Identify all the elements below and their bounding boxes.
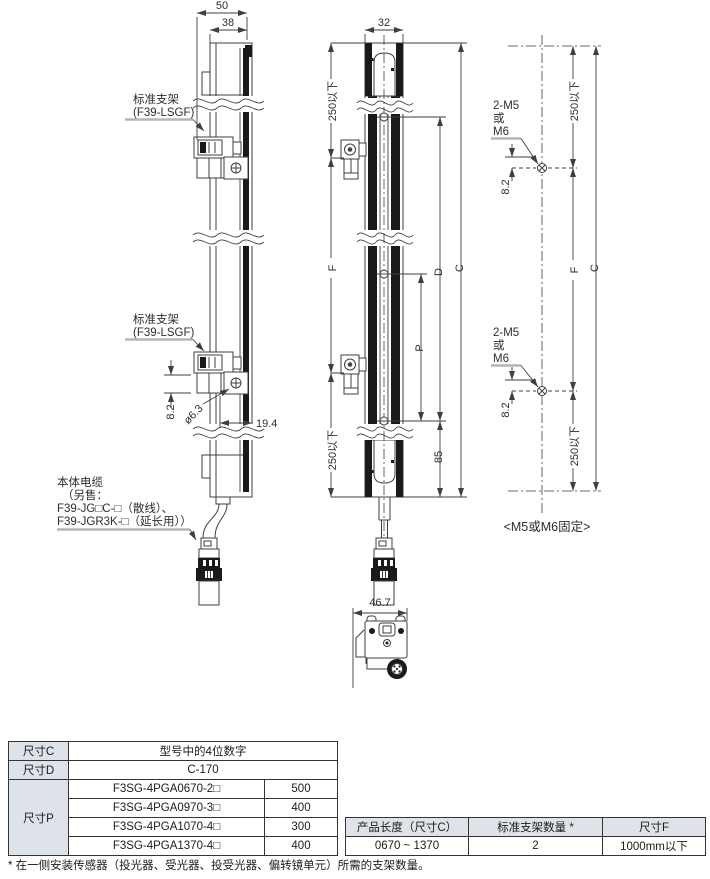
dim-f: F: [569, 266, 581, 273]
bracket-label-bottom: 标准支架 (F39-LSGF): [125, 313, 204, 351]
bracket-label-line2: (F39-LSGF): [133, 107, 195, 119]
dim-f-value: 1000mm以下: [603, 837, 706, 856]
cable-label: 本体电缆 （另售： F39-JG□C-□（散线）、 F39-JGR3K-□（延长…: [57, 475, 196, 540]
dim-8-2-side: 8.2: [165, 404, 177, 419]
header-bracket-count: 标准支架数量 *: [469, 818, 603, 837]
dimension-table: 尺寸C 型号中的4位数字 尺寸D C-170 尺寸P F3SG-4PGA0670…: [8, 741, 338, 856]
break-mark: [357, 98, 413, 114]
cable-label-line1: 本体电缆: [57, 475, 103, 489]
bracket-label-line1: 标准支架: [133, 313, 179, 326]
mounting-bracket-bottom: [341, 355, 366, 394]
dim-p: P: [414, 344, 426, 351]
mount-caption: <M5或M6固定>: [504, 519, 591, 534]
break-mark: [357, 230, 413, 246]
cable-connector: [196, 538, 222, 605]
footnote: * 在一侧安装传感器（投光器、受光器、投受光器、偏转镜单元）所需的支架数量。: [8, 857, 430, 873]
bracket-count-table: 产品长度（尺寸C） 标准支架数量 * 尺寸F 0670 ~ 1370 2 100…: [345, 817, 706, 856]
bracket-label-line1: 标准支架: [133, 93, 179, 106]
dim-19-4: 19.4: [256, 418, 277, 430]
table-row: 尺寸C 型号中的4位数字: [9, 742, 338, 761]
value-cell: 400: [265, 799, 338, 818]
value-cell: 400: [265, 837, 338, 856]
screw-hole-top: [505, 144, 577, 181]
table-row: 尺寸D C-170: [9, 761, 338, 780]
dim-c-value: 型号中的4位数字: [69, 742, 338, 761]
table-header-row: 产品长度（尺寸C） 标准支架数量 * 尺寸F: [346, 818, 706, 837]
bracket-label-line2: (F39-LSGF): [133, 327, 195, 339]
break-mark: [357, 424, 413, 440]
front-view: [341, 35, 413, 605]
dim-8-2-bottom: 8.2: [500, 402, 512, 417]
dim-c-label: 尺寸C: [9, 742, 69, 761]
dim-250-top: 250以下: [569, 81, 581, 121]
table-row: 0670 ~ 1370 2 1000mm以下: [346, 837, 706, 856]
bracket-count-value: 2: [469, 837, 603, 856]
dim-46-7: 46.7: [369, 597, 390, 609]
dim-c: C: [589, 264, 601, 272]
product-length-value: 0670 ~ 1370: [346, 837, 469, 856]
mounting-bracket-top: [194, 137, 248, 179]
dim-hole-diameter: ø6.3: [182, 403, 206, 427]
screw-label-line3: M6: [493, 353, 509, 365]
dim-d-value: C-170: [69, 761, 338, 780]
dim-250-bottom: 250以下: [327, 430, 339, 470]
screw-label-top: 2-M5 或 M6: [491, 100, 538, 164]
mounting-bracket-top: [341, 140, 366, 179]
technical-drawing: 50 38 8.2 ø6.3 19.4 标准支架 (F39-LSGF) 标准支架…: [0, 0, 710, 735]
screw-label-line2: 或: [493, 112, 505, 125]
round-connector: [387, 659, 407, 679]
mount-view: 8.2 8.2 2-M5 或 M6 2-M5 或 M6 250以下 F 250以…: [491, 35, 601, 534]
dim-85: 85: [433, 451, 445, 463]
screw-label-bottom: 2-M5 或 M6: [491, 327, 538, 387]
model-cell: F3SG-4PGA1370-4□: [69, 837, 265, 856]
screw-hole-bottom: [505, 367, 577, 404]
dim-50: 50: [216, 0, 228, 12]
cable-label-line4: F39-JGR3K-□（延长用））: [57, 515, 192, 528]
screw-label-line2: 或: [493, 339, 505, 352]
cable-label-line3: F39-JG□C-□（散线）、: [57, 501, 173, 515]
value-cell: 300: [265, 818, 338, 837]
bottom-view: 46.7: [353, 597, 407, 688]
screw-label-line1: 2-M5: [493, 100, 519, 112]
break-mark: [193, 96, 264, 112]
value-cell: 500: [265, 780, 338, 799]
model-cell: F3SG-4PGA0670-2□: [69, 780, 265, 799]
break-mark: [193, 424, 264, 440]
cable-connector: [371, 538, 397, 605]
dim-32: 32: [378, 17, 390, 29]
screw-label-line3: M6: [493, 126, 509, 138]
dim-d-label: 尺寸D: [9, 761, 69, 780]
side-view: [193, 43, 264, 605]
cable-label-line2: （另售：: [62, 488, 108, 502]
dim-d: D: [433, 268, 445, 276]
bracket-label-top: 标准支架 (F39-LSGF): [125, 93, 204, 131]
header-dim-f: 尺寸F: [603, 818, 706, 837]
dim-38: 38: [222, 17, 234, 29]
screw-label-line1: 2-M5: [493, 327, 519, 339]
dim-250-top: 250以下: [327, 81, 339, 121]
dim-f: F: [327, 264, 339, 271]
model-cell: F3SG-4PGA1070-4□: [69, 818, 265, 837]
dim-8-2-top: 8.2: [500, 179, 512, 194]
model-cell: F3SG-4PGA0970-3□: [69, 799, 265, 818]
dim-250-bottom: 250以下: [569, 426, 581, 466]
dim-c: C: [454, 264, 466, 272]
header-product-length: 产品长度（尺寸C）: [346, 818, 469, 837]
table-row: 尺寸P F3SG-4PGA0670-2□ 500: [9, 780, 338, 799]
break-mark: [193, 230, 264, 246]
dim-p-label: 尺寸P: [9, 780, 69, 856]
mounting-bracket-bottom: [194, 352, 248, 394]
